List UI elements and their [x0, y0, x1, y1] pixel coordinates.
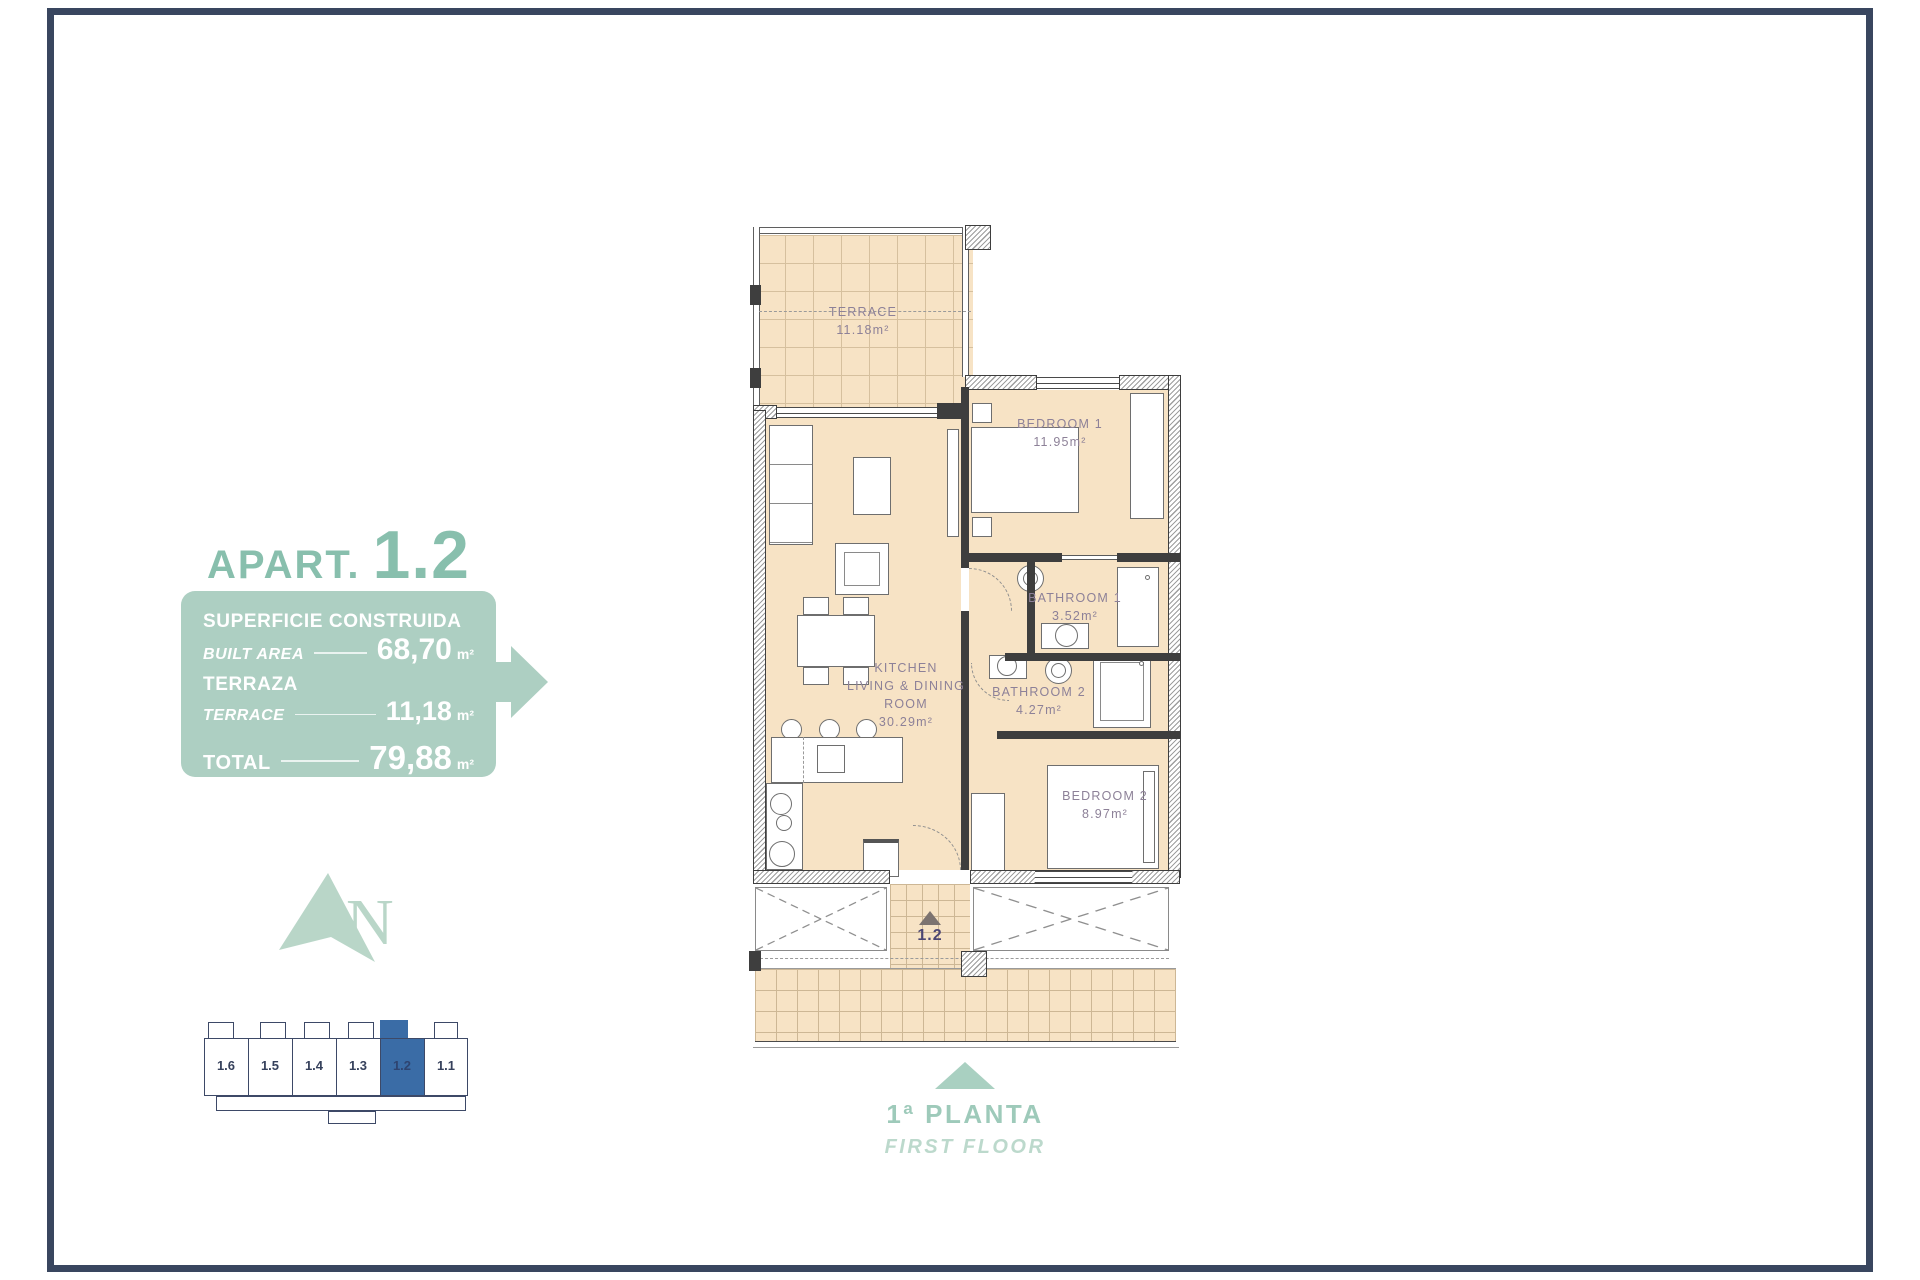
area-summary-panel: SUPERFICIE CONSTRUIDA BUILT AREA 68,70 m…	[181, 591, 496, 777]
unit-label-1-2-highlighted: 1.2	[380, 1058, 424, 1073]
floor-name-en: FIRST FLOOR	[835, 1136, 1095, 1159]
shower	[1093, 655, 1151, 728]
built-area-unit: m²	[457, 646, 474, 662]
armchair	[835, 543, 889, 595]
unit-label-1-3: 1.3	[336, 1058, 380, 1073]
key-plan-stair-bump	[328, 1111, 376, 1124]
floor-indicator: 1ª PLANTA FIRST FLOOR	[835, 1062, 1095, 1159]
compass-north-icon: N	[276, 860, 411, 968]
total-label: TOTAL	[203, 752, 271, 775]
kitchen-sink	[817, 745, 845, 773]
coffee-table	[853, 457, 891, 515]
apartment-title-number: 1.2	[372, 530, 470, 582]
closet-handle	[1145, 575, 1150, 580]
kitchen-living-label: KITCHEN LIVING & DINING ROOM 30.29m²	[843, 659, 969, 732]
column	[961, 951, 987, 977]
bedroom-1-window	[1037, 377, 1119, 389]
leader-line	[281, 760, 359, 762]
exterior-wall	[965, 375, 1037, 390]
key-plan-terrace-bump	[348, 1022, 374, 1039]
round-sink	[769, 841, 795, 867]
exterior-wall-left	[753, 410, 766, 878]
built-area-value: 68,70	[377, 633, 452, 667]
terrace-label-es: TERRAZA	[203, 674, 474, 696]
plan-base-line	[753, 1047, 1179, 1048]
key-plan-terrace-bump	[260, 1022, 286, 1039]
floor-arrow-icon	[935, 1062, 995, 1089]
kitchen-name-line3: ROOM	[843, 695, 969, 713]
built-area-label-es: SUPERFICIE CONSTRUIDA	[203, 611, 474, 633]
sofa	[769, 425, 813, 545]
interior-wall	[969, 553, 1062, 562]
apartment-title: APART. 1.2	[181, 508, 496, 582]
key-plan-walkway	[216, 1096, 466, 1111]
total-unit: m²	[457, 756, 474, 772]
shower-handle	[1139, 661, 1144, 666]
key-plan-terrace-bump	[434, 1022, 458, 1039]
bathroom-1-door	[1062, 555, 1117, 560]
wall-stub	[750, 285, 761, 305]
bedroom-1-label: BEDROOM 1 11.95m²	[985, 415, 1135, 451]
dining-chair	[803, 667, 829, 685]
basin-1	[1055, 624, 1078, 647]
walkway-floor	[755, 968, 1176, 1042]
bathroom-1-name: BATHROOM 1	[1007, 589, 1143, 607]
bathroom-1-label: BATHROOM 1 3.52m²	[1007, 589, 1143, 625]
kitchen-name-line1: KITCHEN	[843, 659, 969, 677]
leader-line	[295, 714, 376, 716]
compass-letter: N	[346, 886, 394, 959]
bedroom-1-area: 11.95m²	[985, 433, 1135, 451]
panel-arrow-right-icon	[494, 646, 548, 718]
bathroom-1-area: 3.52m²	[1007, 607, 1143, 625]
unit-label-1-5: 1.5	[248, 1058, 292, 1073]
hob-burner	[770, 793, 792, 815]
terrace-label: TERRACE 11.18m²	[793, 303, 933, 339]
tv-unit	[947, 429, 959, 537]
interior-wall	[1005, 653, 1180, 661]
apartment-title-prefix: APART.	[207, 548, 360, 582]
interior-wall	[961, 387, 969, 568]
hob-burner	[776, 815, 792, 831]
terrace-name: TERRACE	[793, 303, 933, 321]
floor-name-es: 1ª PLANTA	[835, 1099, 1095, 1130]
terrace-label-en: TERRACE	[203, 707, 285, 725]
void-cross-lines	[974, 888, 1168, 950]
void-cross-lines	[756, 888, 886, 950]
unit-label-1-6: 1.6	[204, 1058, 248, 1073]
terrace-balustrade-top	[753, 227, 987, 234]
bathroom-2-label: BATHROOM 2 4.27m²	[977, 683, 1101, 719]
terrace-area: 11.18m²	[793, 321, 933, 339]
bedroom-1-name: BEDROOM 1	[985, 415, 1135, 433]
entrance-arrow-icon	[919, 911, 941, 925]
terrace-sliding-door	[777, 407, 937, 418]
toilet-2	[1045, 657, 1072, 684]
bathroom-2-area: 4.27m²	[977, 701, 1101, 719]
total-value: 79,88	[369, 739, 452, 777]
kitchen-name-line2: LIVING & DINING	[843, 677, 969, 695]
interior-wall	[1117, 553, 1180, 562]
exterior-wall-bottom	[753, 870, 890, 884]
wardrobe-bedroom-2	[971, 793, 1005, 879]
interior-wall	[961, 611, 969, 870]
nightstand	[972, 517, 992, 537]
corner-column	[965, 225, 991, 250]
bathroom-2-name: BATHROOM 2	[977, 683, 1101, 701]
building-key-plan: 1.6 1.5 1.4 1.3 1.2 1.1	[196, 1014, 486, 1126]
key-plan-terrace-bump	[208, 1022, 234, 1039]
dining-chair	[843, 597, 869, 615]
wardrobe-bedroom-1	[1130, 393, 1164, 519]
kitchen-area: 30.29m²	[843, 713, 969, 731]
wall-stub	[749, 951, 761, 971]
bedroom-2-name: BEDROOM 2	[1033, 787, 1177, 805]
bedroom-2-label: BEDROOM 2 8.97m²	[1033, 787, 1177, 823]
floor-plan: TERRACE 11.18m² BEDROOM 1 11.95m² BATHRO…	[745, 225, 1185, 1055]
bedroom-2-window	[1035, 871, 1132, 883]
unit-label-1-4: 1.4	[292, 1058, 336, 1073]
entrance-unit-label: 1.2	[908, 927, 952, 945]
void-right	[973, 887, 1169, 951]
wall-stub	[750, 368, 761, 388]
built-area-label-en: BUILT AREA	[203, 646, 304, 664]
counter-overhang-line	[803, 737, 804, 783]
unit-label-1-1: 1.1	[424, 1058, 468, 1073]
terrace-unit: m²	[457, 707, 474, 723]
terrace-value: 11,18	[386, 696, 452, 727]
void-left	[755, 887, 887, 951]
key-plan-terrace-bump	[304, 1022, 330, 1039]
entrance-corridor-floor	[890, 884, 970, 968]
interior-wall	[997, 731, 1180, 739]
dining-chair	[803, 597, 829, 615]
bedroom-2-area: 8.97m²	[1033, 805, 1177, 823]
leader-line	[314, 652, 367, 654]
